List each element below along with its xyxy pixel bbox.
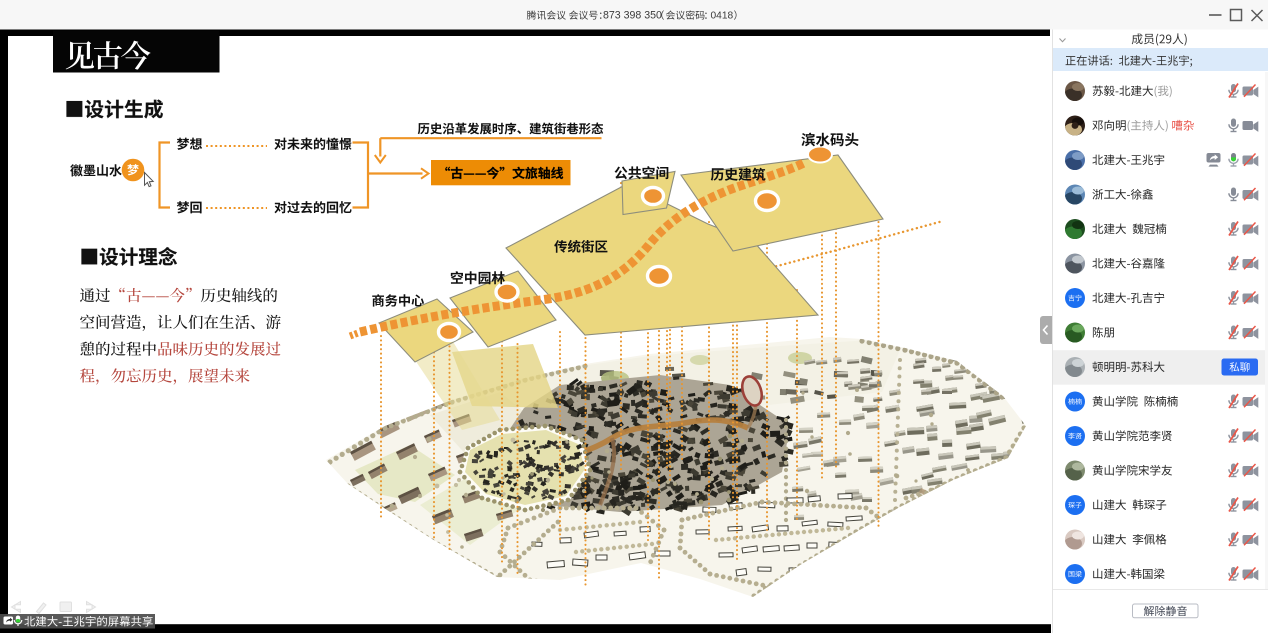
svg-text:0418: 0418 bbox=[711, 11, 734, 22]
svg-text:873 398 350: 873 398 350 bbox=[603, 10, 662, 22]
